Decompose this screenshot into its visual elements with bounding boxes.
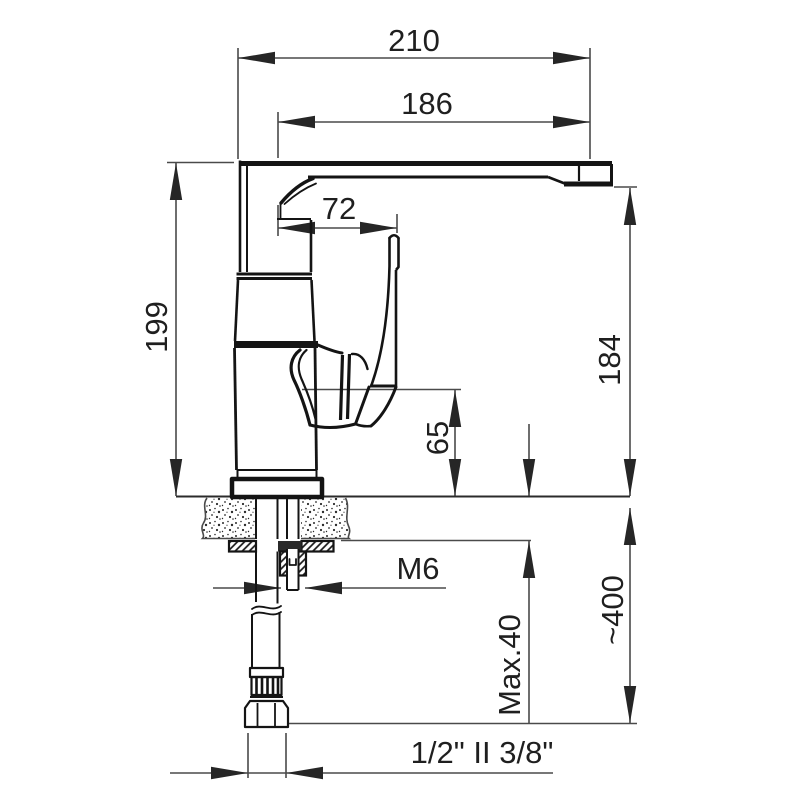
label-handle-reach: 72 (322, 191, 356, 226)
supply-hose-upper (256, 497, 278, 539)
counter-stipple-right (301, 498, 350, 539)
countertop-section (176, 497, 630, 539)
boss-slot (341, 354, 350, 420)
handle-front-outer (396, 238, 399, 270)
stud-channel (287, 549, 299, 583)
body-lower-right (315, 348, 317, 470)
handle-rear-edge (372, 238, 390, 385)
technical-drawing-page: 210 186 72 199 184 65 M6 Max.40 ~400 1/2… (0, 0, 800, 800)
label-total-width: 210 (388, 23, 440, 58)
handle-wedge-right (371, 387, 396, 426)
column-mid-left (235, 280, 238, 341)
body-lower-left (235, 348, 237, 470)
label-spout-reach: 186 (401, 86, 453, 121)
boss-left-inner (299, 350, 316, 419)
label-max-mount-thickness: Max.40 (492, 614, 527, 716)
handle-wedge-left (356, 387, 370, 424)
counter-stipple-left (202, 498, 255, 539)
hose-mid (256, 552, 278, 604)
faucet-installation-drawing: 210 186 72 199 184 65 M6 Max.40 ~400 1/2… (0, 0, 800, 800)
handle-top-cap (390, 235, 399, 238)
boss-left-outer (291, 350, 310, 425)
mounting-stud-upper (287, 497, 299, 539)
boss-junction-curve (352, 354, 368, 369)
label-body-height: 65 (420, 421, 455, 455)
hose-break-lower (252, 612, 281, 615)
handle-wedge-bottom (356, 424, 372, 426)
label-hose-length: ~400 (595, 575, 630, 645)
hose-break-upper (252, 606, 281, 609)
boss-top-bulge (318, 345, 342, 353)
column-joint-upper (237, 274, 313, 279)
base-plate (232, 479, 322, 497)
hose-lower (252, 612, 280, 668)
crimp-ribs (257, 677, 279, 695)
hex-nut-outline (245, 701, 288, 727)
label-thread-size: M6 (396, 551, 439, 586)
washer-left (229, 541, 256, 552)
label-connection-size: 1/2" II 3/8" (411, 735, 554, 770)
spout-tip-step (548, 177, 566, 184)
label-spout-height: 184 (592, 334, 627, 386)
spout-base-curve-outer (281, 179, 313, 204)
hex-nut-facets (258, 703, 276, 727)
crimp-collar (250, 668, 283, 677)
dimension-lines (167, 48, 637, 779)
dimension-labels: 210 186 72 199 184 65 M6 Max.40 ~400 1/2… (139, 23, 630, 770)
column-mid-right (312, 280, 315, 341)
label-total-height: 199 (139, 301, 174, 353)
washer-right (302, 541, 334, 552)
